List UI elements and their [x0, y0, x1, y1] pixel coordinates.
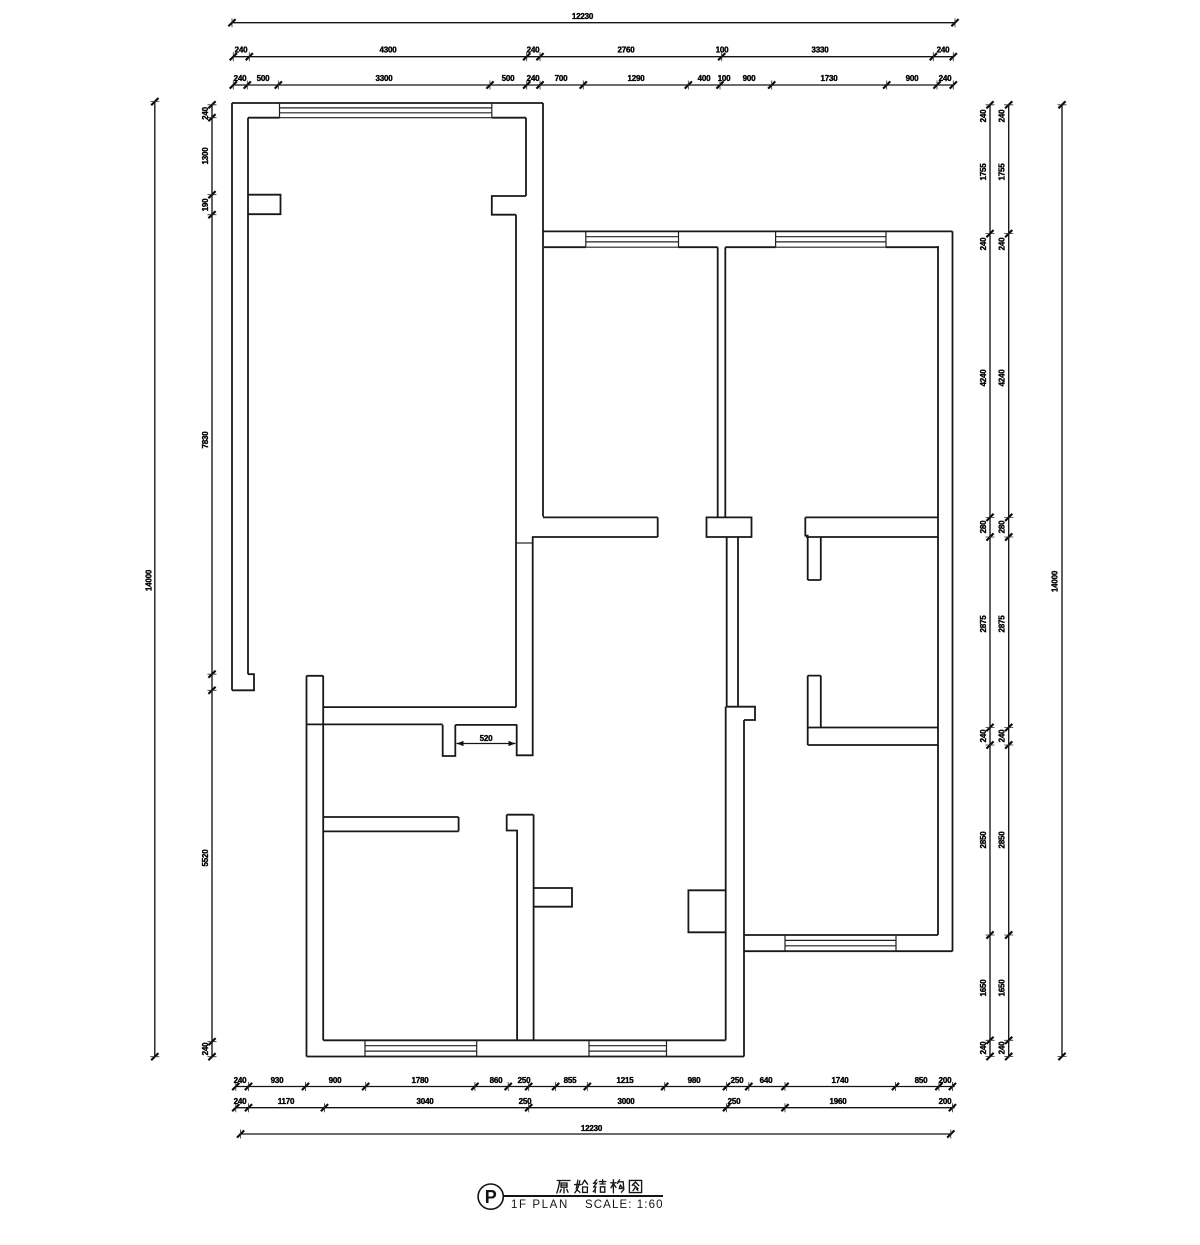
svg-text:200: 200 — [939, 1076, 952, 1085]
svg-text:100: 100 — [716, 46, 729, 55]
svg-text:5520: 5520 — [201, 849, 210, 867]
svg-text:250: 250 — [518, 1076, 531, 1085]
svg-text:14000: 14000 — [144, 569, 153, 591]
svg-text:100: 100 — [718, 74, 731, 83]
svg-text:250: 250 — [728, 1097, 741, 1106]
svg-text:200: 200 — [939, 1097, 952, 1106]
svg-text:3040: 3040 — [417, 1097, 435, 1106]
svg-text:240: 240 — [979, 109, 988, 122]
svg-text:240: 240 — [998, 109, 1007, 122]
svg-text:240: 240 — [979, 1041, 988, 1054]
svg-text:1730: 1730 — [821, 74, 839, 83]
svg-text:240: 240 — [201, 106, 210, 119]
svg-text:855: 855 — [564, 1076, 577, 1085]
svg-text:2760: 2760 — [618, 46, 636, 55]
svg-text:250: 250 — [519, 1097, 532, 1106]
svg-text:900: 900 — [906, 74, 919, 83]
svg-text:240: 240 — [527, 46, 540, 55]
svg-text:2850: 2850 — [979, 831, 988, 849]
svg-text:1170: 1170 — [278, 1097, 295, 1106]
svg-text:1960: 1960 — [830, 1097, 848, 1106]
svg-text:250: 250 — [731, 1076, 744, 1085]
svg-text:500: 500 — [502, 74, 515, 83]
svg-text:240: 240 — [998, 729, 1007, 742]
svg-text:240: 240 — [979, 729, 988, 742]
svg-text:900: 900 — [743, 74, 756, 83]
svg-text:280: 280 — [998, 520, 1007, 533]
svg-text:12230: 12230 — [572, 12, 594, 21]
svg-text:240: 240 — [979, 237, 988, 250]
svg-text:240: 240 — [234, 1076, 247, 1085]
svg-text:3000: 3000 — [618, 1097, 636, 1106]
svg-text:1215: 1215 — [617, 1076, 635, 1085]
svg-text:1290: 1290 — [628, 74, 646, 83]
svg-text:2850: 2850 — [998, 831, 1007, 849]
svg-text:4300: 4300 — [380, 46, 398, 55]
svg-text:2875: 2875 — [998, 615, 1007, 633]
svg-text:240: 240 — [937, 46, 950, 55]
svg-text:1755: 1755 — [979, 163, 988, 181]
svg-text:1740: 1740 — [832, 1076, 850, 1085]
svg-text:240: 240 — [201, 1042, 210, 1055]
svg-text:SCALE: 1:60: SCALE: 1:60 — [585, 1199, 664, 1211]
svg-text:3330: 3330 — [812, 46, 830, 55]
svg-text:850: 850 — [915, 1076, 928, 1085]
svg-text:190: 190 — [201, 198, 210, 211]
svg-text:240: 240 — [527, 74, 540, 83]
svg-text:980: 980 — [688, 1076, 701, 1085]
svg-text:520: 520 — [480, 734, 493, 743]
svg-text:1F PLAN: 1F PLAN — [511, 1199, 569, 1211]
svg-text:240: 240 — [235, 46, 248, 55]
svg-text:1650: 1650 — [979, 979, 988, 997]
svg-text:240: 240 — [234, 1097, 247, 1106]
svg-text:7830: 7830 — [201, 431, 210, 449]
svg-text:700: 700 — [555, 74, 568, 83]
svg-text:4240: 4240 — [998, 369, 1007, 387]
svg-text:2875: 2875 — [979, 615, 988, 633]
svg-text:640: 640 — [760, 1076, 773, 1085]
svg-text:900: 900 — [329, 1076, 342, 1085]
svg-text:240: 240 — [998, 1041, 1007, 1054]
svg-text:280: 280 — [979, 520, 988, 533]
svg-text:240: 240 — [234, 74, 247, 83]
svg-text:1780: 1780 — [412, 1076, 430, 1085]
svg-text:P: P — [485, 1187, 497, 1207]
svg-text:930: 930 — [271, 1076, 284, 1085]
svg-text:12230: 12230 — [581, 1124, 603, 1133]
svg-text:1755: 1755 — [998, 163, 1007, 181]
svg-text:860: 860 — [490, 1076, 503, 1085]
svg-text:240: 240 — [939, 74, 952, 83]
svg-text:400: 400 — [698, 74, 711, 83]
svg-text:500: 500 — [257, 74, 270, 83]
svg-text:240: 240 — [998, 237, 1007, 250]
svg-text:4240: 4240 — [979, 369, 988, 387]
svg-text:3300: 3300 — [376, 74, 394, 83]
svg-text:1300: 1300 — [201, 147, 210, 165]
svg-text:1650: 1650 — [998, 979, 1007, 997]
svg-text:14000: 14000 — [1051, 570, 1060, 592]
